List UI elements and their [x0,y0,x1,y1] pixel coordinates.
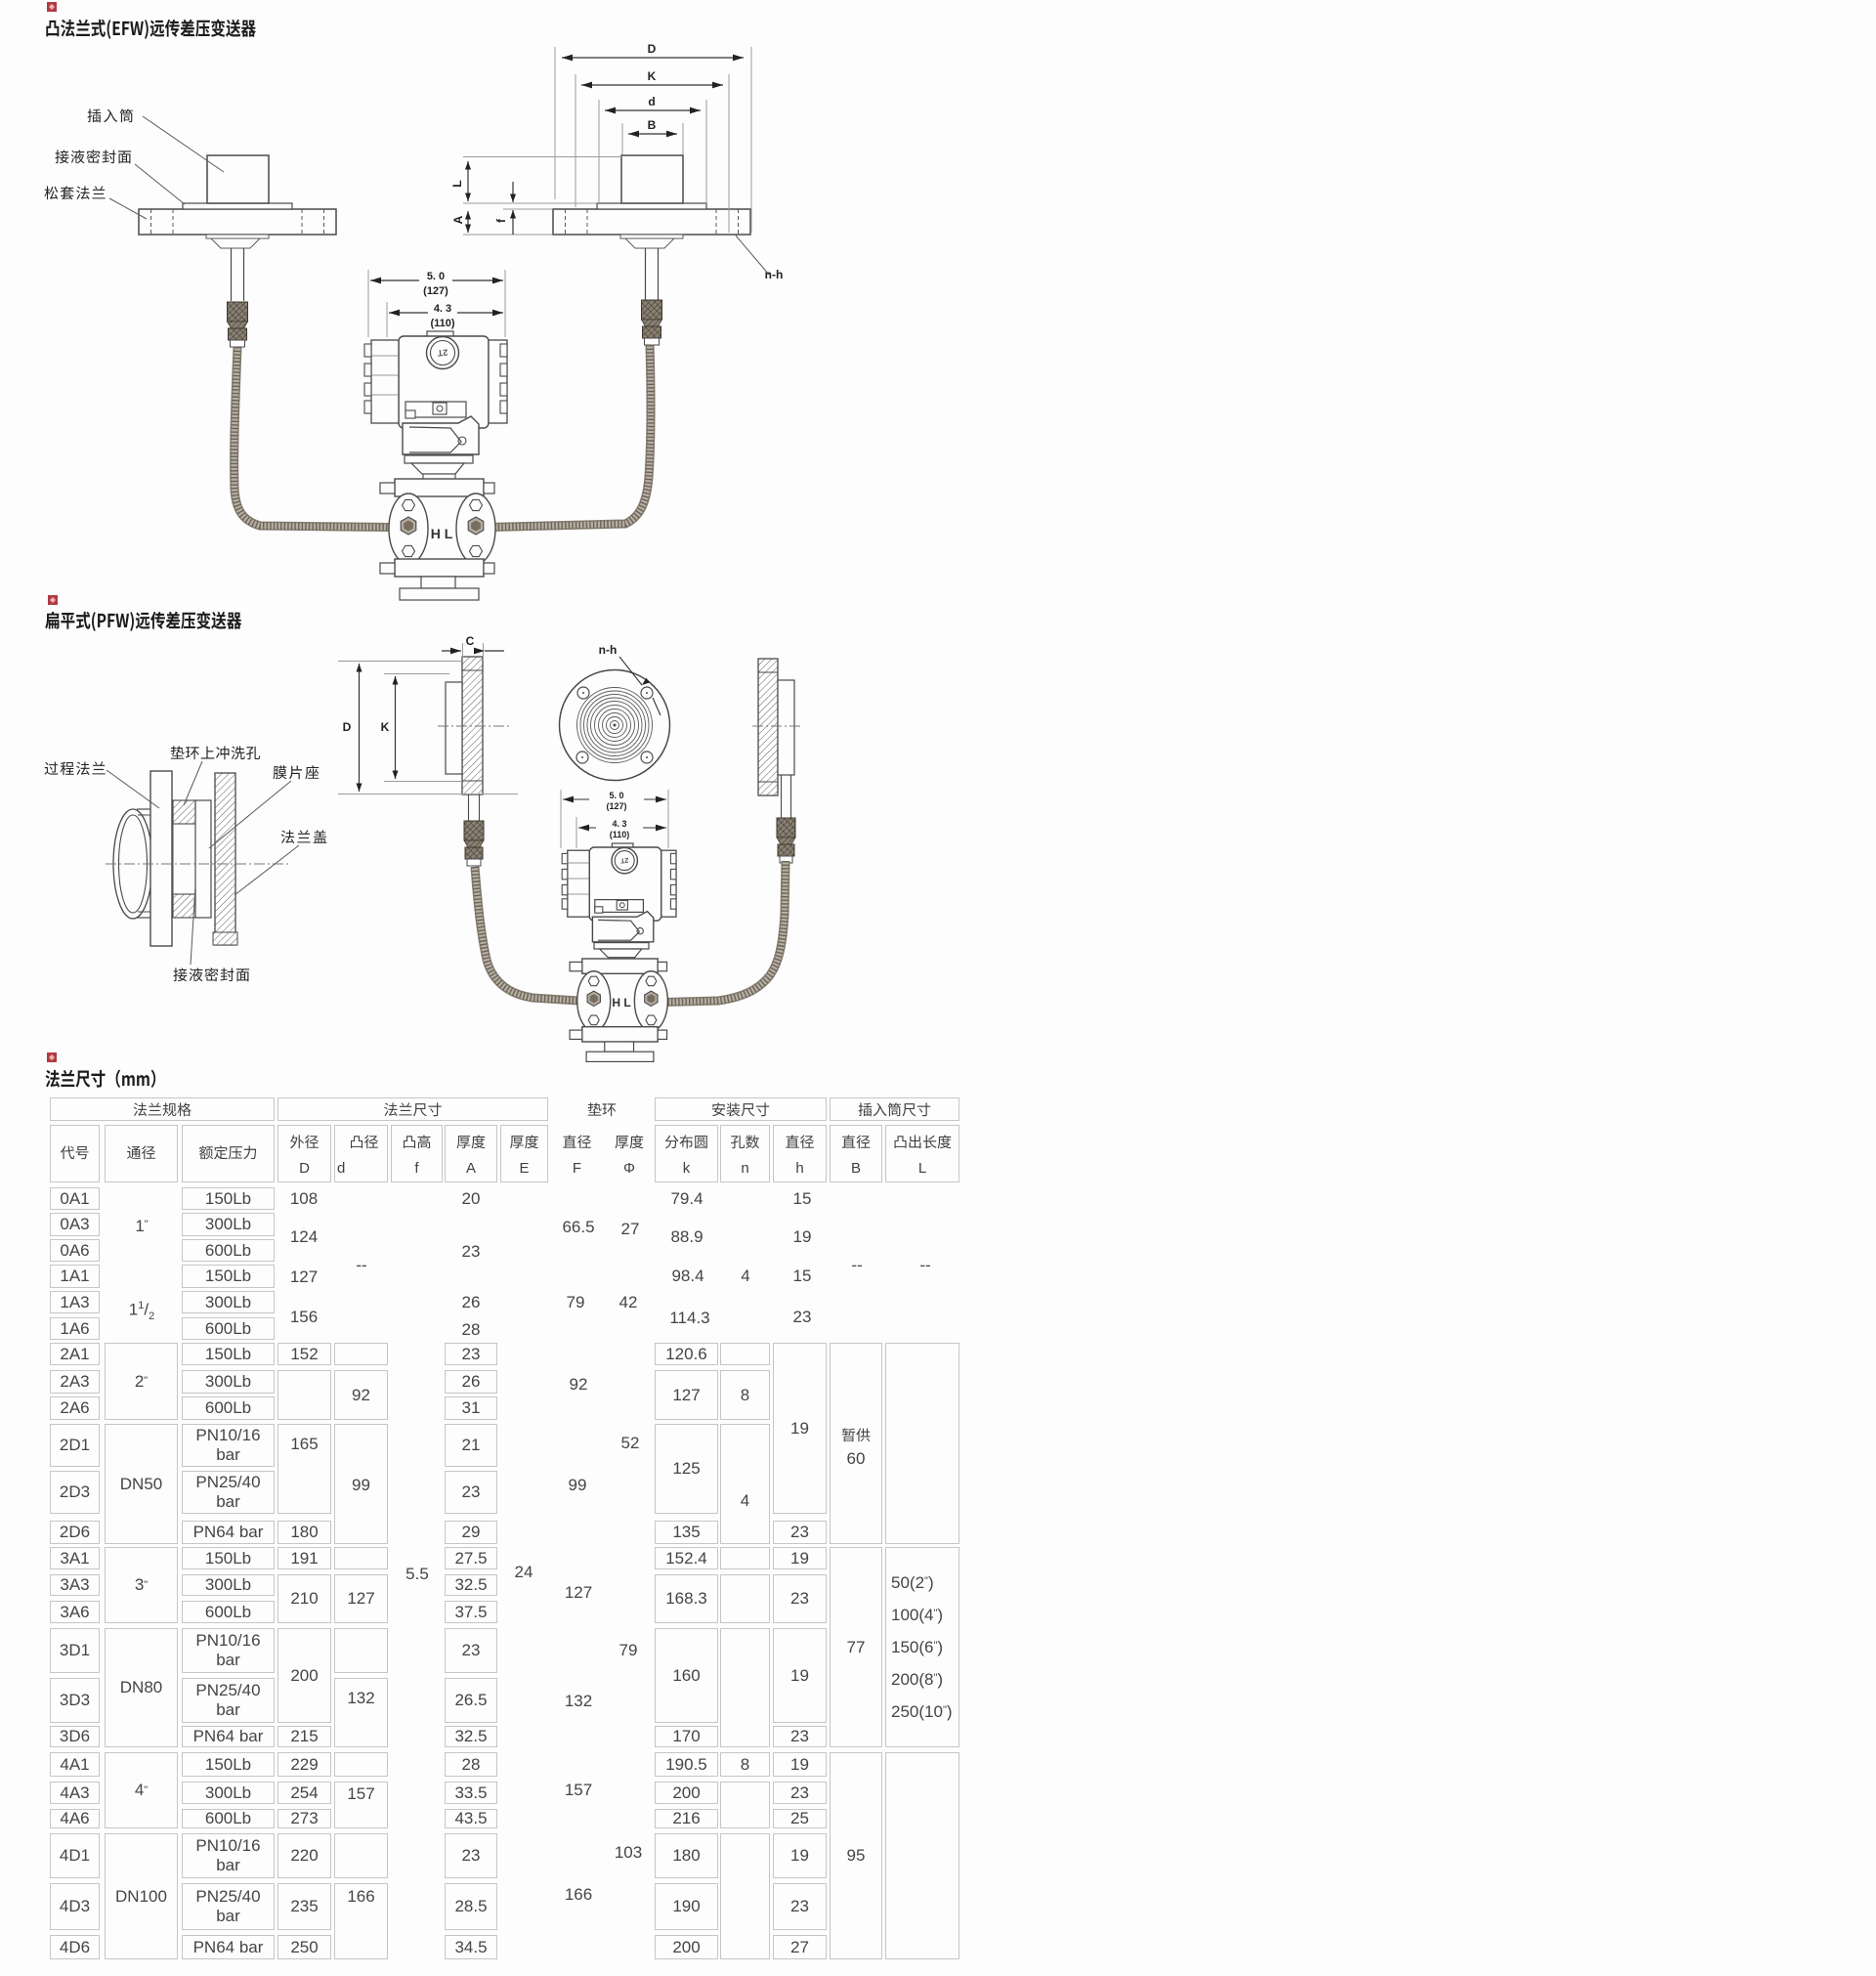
svg-text:4. 3: 4. 3 [434,303,451,315]
svg-text:n-h: n-h [599,643,618,657]
svg-text:H L: H L [431,526,453,541]
svg-text:D: D [343,720,352,734]
svg-text:A: A [451,215,465,224]
svg-text:K: K [381,720,390,734]
svg-text:(127): (127) [606,801,626,811]
svg-text:K: K [648,69,657,83]
svg-text:H L: H L [612,996,630,1009]
svg-text:n-h: n-h [765,268,784,281]
svg-text:5. 0: 5. 0 [609,791,623,800]
svg-text:4. 3: 4. 3 [612,819,626,829]
svg-text:2T: 2T [437,348,448,359]
svg-text:D: D [648,42,657,56]
svg-text:C: C [466,634,475,648]
svg-text:f: f [494,218,508,223]
svg-text:(110): (110) [430,318,454,329]
svg-text:d: d [648,95,655,108]
svg-text:(110): (110) [610,830,630,839]
svg-text:L: L [450,180,464,187]
svg-text:(127): (127) [423,285,448,297]
svg-text:5. 0: 5. 0 [427,271,445,282]
svg-text:2T: 2T [619,856,629,866]
svg-text:B: B [648,118,657,132]
